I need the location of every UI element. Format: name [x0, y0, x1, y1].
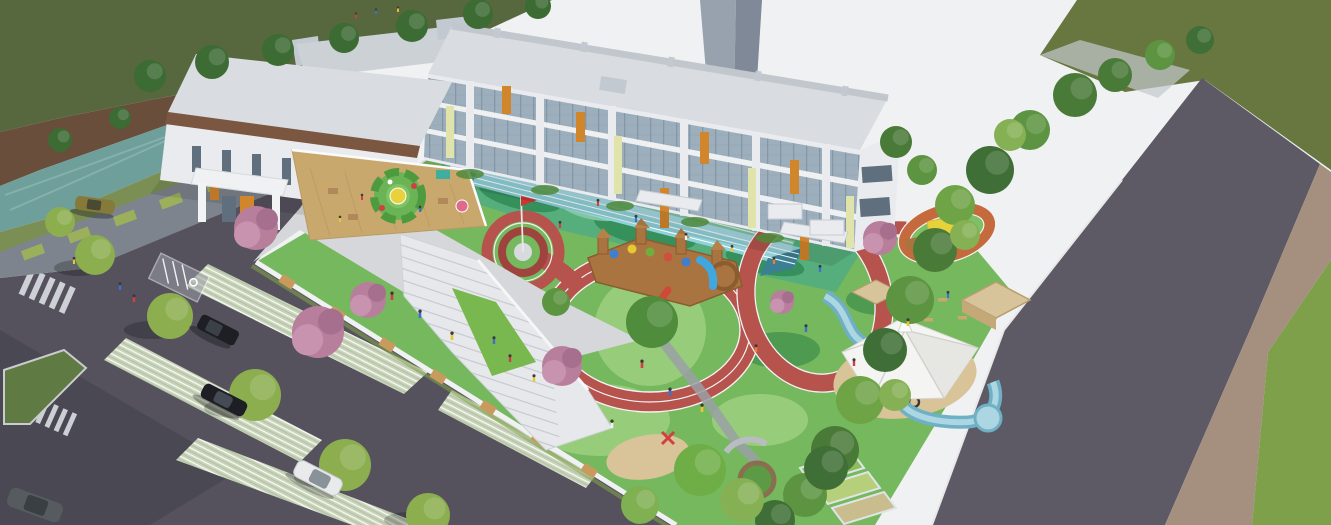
campus-aerial-render [0, 0, 1331, 525]
yellow-table [390, 188, 406, 204]
rendering-canvas [0, 0, 1331, 525]
pink-umbrella [456, 200, 468, 212]
teal-canopy [436, 170, 450, 179]
